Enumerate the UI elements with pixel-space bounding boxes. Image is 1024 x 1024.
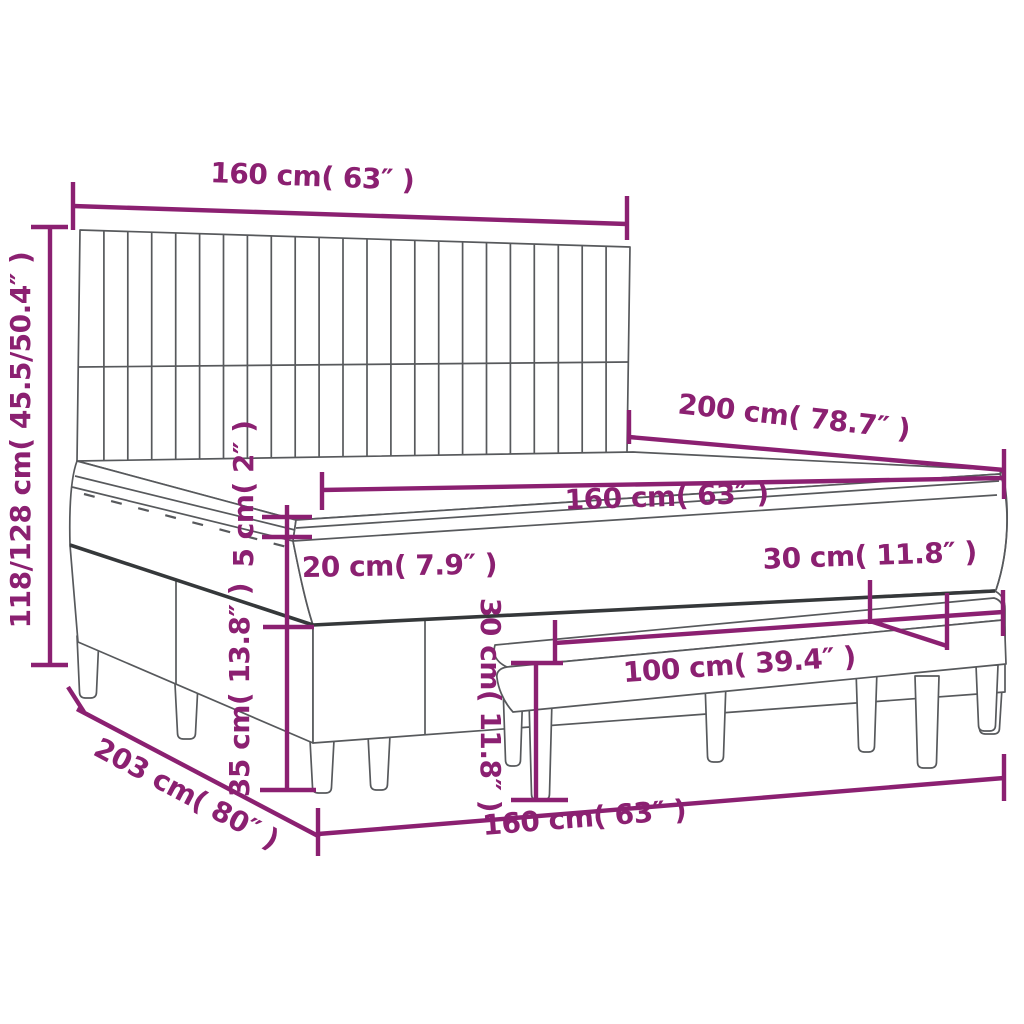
- dim-label-mattress-thickness: 20 cm( 7.9″ ): [302, 548, 498, 584]
- dim-label-base-height: 35 cm( 13.8″ ): [223, 583, 256, 797]
- headboard-outline: [77, 230, 630, 462]
- dim-label-bed-length: 200 cm( 78.7″ ): [676, 387, 911, 445]
- bench-leg: [856, 670, 877, 752]
- bench-leg: [529, 700, 552, 800]
- dim-headboard-height: 118/128 cm( 45.5/50.4″ ): [4, 227, 68, 665]
- bed-leg: [310, 740, 334, 793]
- bench-leg: [915, 676, 939, 768]
- dim-label-bench-height: 30 cm( 11.8″ ): [474, 598, 507, 812]
- dim-label-topper-thickness: 5 cm( 2″ ): [227, 420, 260, 567]
- dim-headboard-width: 160 cm( 63″ ): [73, 156, 627, 240]
- bench-leg: [976, 665, 998, 731]
- dim-line: [73, 206, 627, 224]
- dim-footprint-width: 160 cm( 63″ ): [318, 754, 1004, 856]
- bench-leg: [705, 682, 726, 762]
- dim-label-headboard-height: 118/128 cm( 45.5/50.4″ ): [4, 252, 37, 629]
- headboard: [77, 230, 630, 462]
- dim-label-headboard-width: 160 cm( 63″ ): [210, 156, 415, 197]
- bed-leg: [368, 735, 390, 790]
- dimension-diagram: 160 cm( 63″ ) 118/128 cm( 45.5/50.4″ ) 2…: [0, 0, 1024, 1024]
